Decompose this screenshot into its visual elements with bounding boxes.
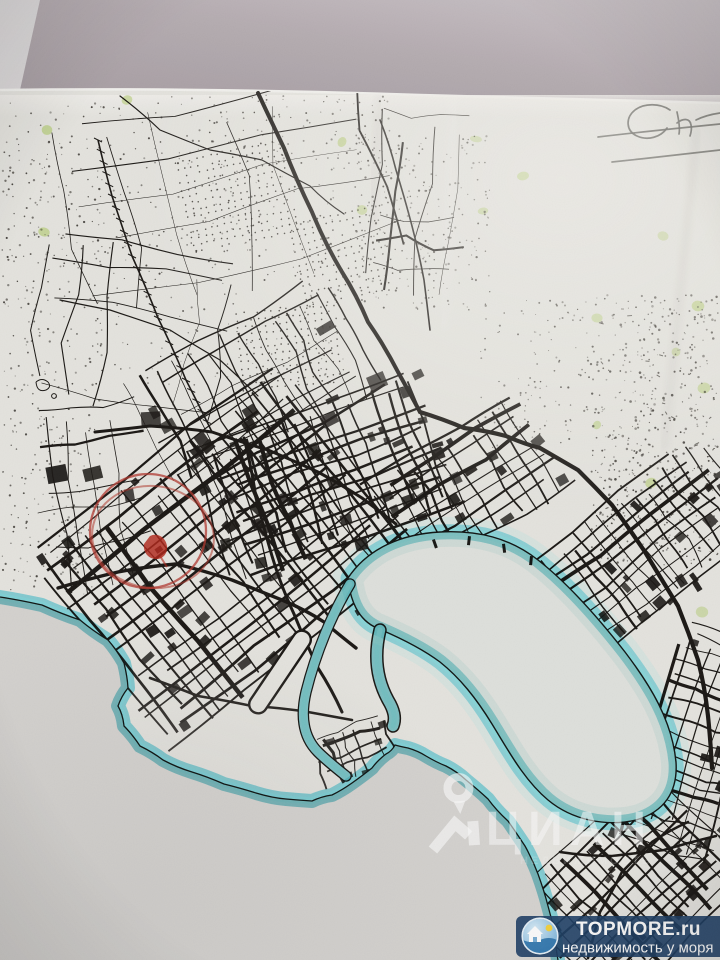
map-scene: ЦИАН НЕДВИЖИМОСТЬ TOPMORE.ru недвижимост… <box>0 0 720 960</box>
map-photo: ЦИАН НЕДВИЖИМОСТЬ TOPMORE.ru недвижимост… <box>0 0 720 960</box>
photo-vignette <box>0 0 720 960</box>
